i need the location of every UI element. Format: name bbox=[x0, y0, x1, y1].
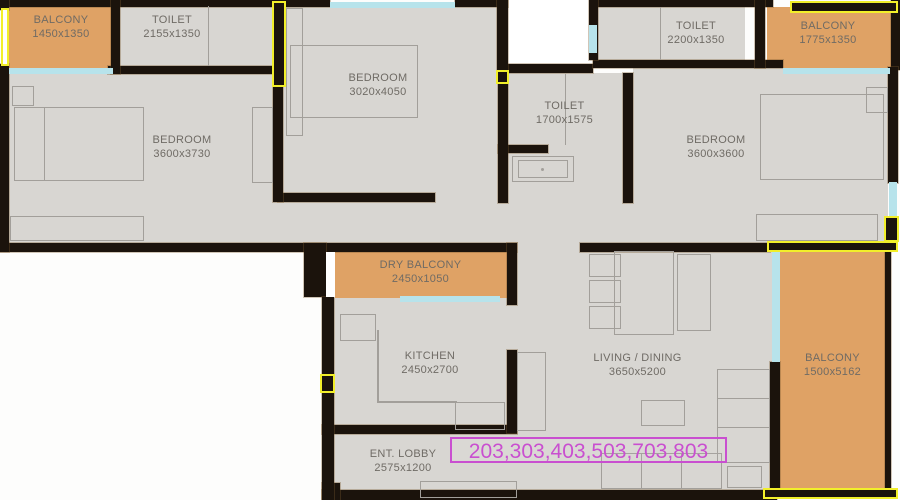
wall-toilet-tl-bottom bbox=[108, 66, 278, 74]
tv-unit-divider-1 bbox=[717, 398, 770, 399]
column-marker-balcony-right-top bbox=[767, 241, 898, 252]
kitchen-counter-hline bbox=[377, 401, 457, 403]
wall-toilet-mid-left bbox=[498, 81, 508, 203]
wall-bedroom-right-right bbox=[888, 67, 898, 183]
room-label-entrance-lobby: ENT. LOBBY2575x1200 bbox=[348, 448, 458, 476]
washbasin-faucet-dot bbox=[541, 168, 544, 171]
nightstand-left-bedroom bbox=[12, 86, 34, 106]
wall-kitchen-right bbox=[507, 350, 517, 433]
window-balcony-top-left bbox=[9, 68, 113, 74]
room-label-toilet-top-right: TOILET2200x1350 bbox=[646, 20, 746, 48]
wall-toilet-mid-right bbox=[623, 73, 633, 203]
room-label-balcony-top-left: BALCONY1450x1350 bbox=[11, 14, 111, 42]
window-balcony-top-right bbox=[783, 68, 890, 74]
shelf-right-bedroom bbox=[866, 87, 888, 113]
wall-kitchen-left bbox=[322, 297, 334, 500]
wardrobe-left-bedroom bbox=[252, 107, 273, 183]
wall-bedroom-top-left bbox=[273, 85, 283, 202]
wall-balcony-right-edge bbox=[885, 252, 891, 488]
column-marker-bedroom-top-left bbox=[272, 1, 286, 87]
room-label-living-dining: LIVING / DINING3650x5200 bbox=[565, 352, 710, 380]
kitchen-platform-top bbox=[340, 314, 376, 341]
column-marker-balcony-right-bottom bbox=[763, 488, 898, 499]
center-table bbox=[641, 400, 685, 426]
room-label-balcony-top-right: BALCONY1775x1350 bbox=[778, 20, 878, 48]
wardrobe-right-bedroom bbox=[756, 214, 878, 241]
tv-unit-divider-2 bbox=[717, 427, 770, 428]
room-label-kitchen: KITCHEN2450x2700 bbox=[380, 350, 480, 378]
window-dry-balcony bbox=[400, 296, 500, 302]
window-duct bbox=[589, 25, 597, 53]
room-label-bedroom-left: BEDROOM3600x3730 bbox=[132, 134, 232, 162]
wall-living-balcony bbox=[770, 362, 780, 490]
dining-chair-right bbox=[677, 254, 711, 331]
fridge-outline bbox=[517, 352, 546, 431]
wall-mid-band bbox=[0, 243, 517, 252]
column-marker-kitchen-left bbox=[320, 374, 335, 393]
window-bedroom-right bbox=[889, 182, 897, 218]
wall-bedroom-right-bottom bbox=[580, 243, 770, 252]
room-label-balcony-right: BALCONY1500x5162 bbox=[780, 352, 885, 380]
room-label-bedroom-top: BEDROOM3020x4050 bbox=[328, 72, 428, 100]
bed-pillow-line-left bbox=[44, 107, 45, 181]
wall-toilet-tr-left-of-balcony bbox=[755, 0, 765, 68]
wall-balcony-tl-right bbox=[111, 0, 120, 74]
lobby-cabinet bbox=[420, 481, 517, 498]
window-living-balcony bbox=[772, 252, 780, 362]
room-label-toilet-middle: TOILET1700x1575 bbox=[512, 100, 617, 128]
void-duct bbox=[508, 0, 589, 64]
dining-table bbox=[614, 251, 674, 335]
column-marker-void-left bbox=[496, 70, 509, 84]
wall-bedroom-top-bottom bbox=[278, 193, 435, 202]
wall-void-left bbox=[497, 0, 508, 73]
floor-plan: BALCONY1450x1350 TOILET2155x1350 BEDROOM… bbox=[0, 0, 900, 500]
column-marker-right-mid bbox=[884, 216, 899, 242]
room-label-dry-balcony: DRY BALCONY2450x1050 bbox=[358, 259, 483, 287]
window-bedroom-top bbox=[330, 2, 455, 8]
wall-corner-chunk bbox=[304, 243, 326, 297]
wall-void-bottom bbox=[503, 64, 593, 73]
bed-outline-left-bedroom bbox=[14, 107, 144, 181]
room-label-toilet-top-left: TOILET2155x1350 bbox=[122, 14, 222, 42]
dresser-left-bedroom bbox=[10, 216, 144, 241]
column-marker-top-right-wall bbox=[790, 1, 898, 13]
kitchen-platform-sink bbox=[455, 402, 505, 430]
column-marker-left-edge bbox=[1, 8, 9, 66]
kitchen-counter-vline bbox=[377, 330, 379, 403]
room-label-bedroom-right: BEDROOM3600x3600 bbox=[666, 134, 766, 162]
sofa-side-table bbox=[727, 466, 762, 488]
wall-dry-balcony-right bbox=[507, 243, 517, 305]
wall-top-right bbox=[593, 0, 773, 7]
wardrobe-top-bedroom bbox=[286, 8, 303, 136]
gap-dry-balcony-left bbox=[326, 252, 335, 297]
wall-bottom bbox=[322, 490, 777, 500]
wall-left bbox=[0, 64, 9, 252]
unit-numbers-badge: 203,303,403,503,703,803 bbox=[450, 437, 727, 463]
unit-numbers-text: 203,303,403,503,703,803 bbox=[469, 440, 708, 463]
